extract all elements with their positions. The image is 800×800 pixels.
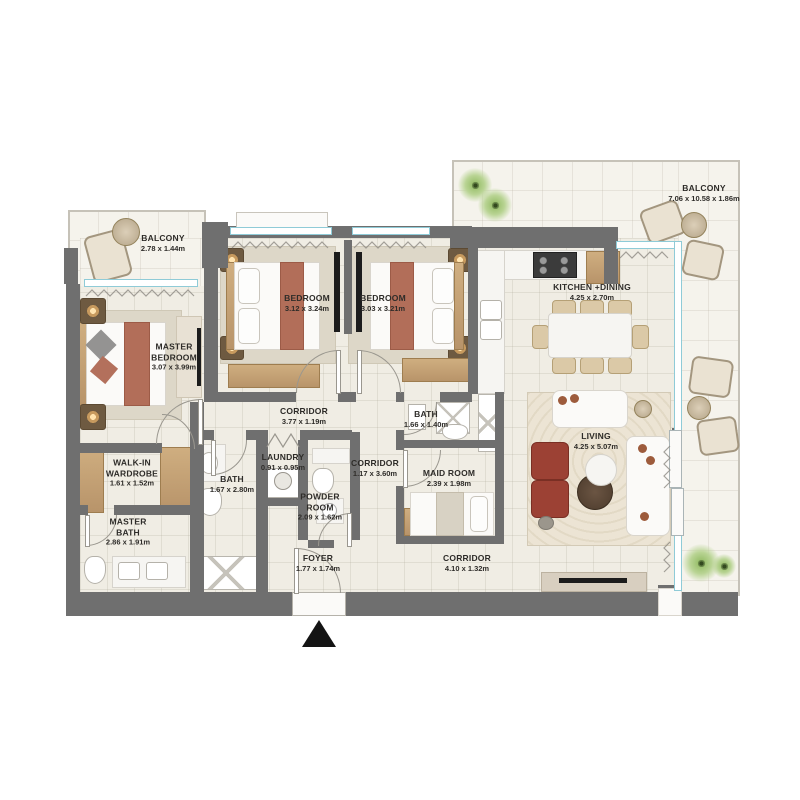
wall: [440, 392, 472, 402]
dining-chair: [552, 357, 576, 374]
sofa-cushion: [638, 444, 647, 453]
window: [230, 227, 332, 235]
wall: [604, 248, 618, 284]
wall: [468, 238, 478, 394]
coffee-table: [585, 454, 617, 486]
entrance-threshold: [292, 592, 346, 616]
entrance-door-leaf: [294, 548, 299, 594]
armchair: [531, 480, 569, 518]
door-leaf: [85, 515, 90, 547]
armchair: [531, 442, 569, 480]
bed-headboard: [454, 262, 464, 350]
toilet-icon: [312, 468, 334, 494]
door-leaf: [336, 350, 341, 394]
wall: [396, 440, 502, 448]
curtain-zigzag-icon: [352, 240, 430, 250]
sliding-door-panel: [671, 488, 684, 536]
balcony-table: [687, 396, 711, 420]
bed-runner: [390, 262, 414, 350]
door-leaf: [347, 513, 352, 547]
wall: [80, 443, 162, 453]
balcony-outline: [452, 160, 454, 227]
door-leaf: [211, 440, 216, 476]
sofa-cushion: [558, 396, 567, 405]
maid-bed-blanket: [436, 492, 464, 536]
tv: [559, 578, 627, 583]
bed-pillow: [238, 268, 260, 304]
bifold-door-icon: [266, 432, 302, 448]
wall: [114, 505, 190, 515]
window: [84, 279, 198, 287]
nightstand-lamp: [80, 404, 106, 430]
window: [616, 241, 680, 249]
master-bed-runner: [124, 322, 150, 406]
nightstand-lamp: [80, 298, 106, 324]
wall: [396, 392, 404, 402]
bedroom-2-wardrobe: [334, 252, 340, 332]
curtain-zigzag-icon: [618, 250, 676, 260]
balcony-outline: [738, 160, 740, 596]
dining-table: [548, 313, 632, 358]
stove-icon: [533, 252, 577, 278]
wall: [80, 505, 88, 515]
balcony-table: [112, 218, 140, 246]
sofa-cushion: [640, 512, 649, 521]
dining-chair: [608, 357, 632, 374]
washer-door-icon: [274, 472, 292, 490]
plant-icon: [478, 188, 512, 222]
door-leaf: [357, 350, 362, 394]
balcony-chair: [681, 238, 726, 281]
door-leaf: [198, 399, 203, 445]
bed-pillow: [470, 496, 488, 532]
dining-chair: [580, 357, 604, 374]
wall: [396, 486, 404, 540]
wall: [256, 438, 268, 592]
wall: [344, 240, 352, 334]
sofa-cushion: [570, 394, 579, 403]
wall: [204, 238, 218, 396]
entrance-arrow-icon: [302, 620, 336, 647]
bed-runner: [280, 262, 304, 350]
decor-stone: [538, 516, 554, 530]
balcony-outline: [452, 160, 740, 162]
window: [352, 227, 430, 235]
kitchen-sink-icon: [480, 300, 502, 320]
curtain-zigzag-icon: [230, 240, 332, 250]
kitchen-sink-icon: [480, 320, 502, 340]
wall: [495, 392, 504, 540]
sink-icon: [146, 562, 168, 580]
wall: [256, 498, 308, 506]
door-leaf: [403, 450, 408, 488]
bed-pillow: [432, 268, 454, 304]
master-tv: [197, 328, 201, 386]
plant-icon: [712, 554, 736, 578]
wall: [66, 284, 80, 616]
balcony-chair: [696, 415, 741, 456]
wall: [396, 536, 504, 544]
dining-chair: [532, 325, 549, 349]
sink-icon: [118, 562, 140, 580]
bed-pillow: [432, 308, 454, 344]
balcony-table: [681, 212, 707, 238]
bedroom-3-wardrobe: [356, 252, 362, 332]
wall: [64, 248, 78, 284]
balcony-outline: [68, 210, 206, 212]
wardrobe-unit: [160, 447, 192, 511]
toilet-icon: [84, 556, 106, 584]
wall: [300, 430, 352, 440]
balcony-chair: [688, 355, 735, 398]
bed-pillow: [238, 308, 260, 344]
sofa-cushion: [646, 456, 655, 465]
wall: [66, 592, 292, 616]
window-wall: [674, 241, 682, 591]
powder-counter: [312, 448, 350, 464]
side-table: [634, 400, 652, 418]
wall: [204, 392, 296, 402]
curtain-zigzag-icon: [662, 444, 672, 490]
curtain-zigzag-icon: [84, 288, 198, 298]
toilet-icon: [442, 424, 468, 440]
curtain-zigzag-icon: [662, 540, 672, 580]
wall: [298, 440, 308, 540]
wall: [204, 430, 214, 440]
dining-chair: [632, 325, 649, 349]
wall-step: [658, 588, 682, 616]
bedroom-3-dresser: [402, 358, 470, 382]
floor-plan: BALCONY 2.78 x 1.44m MASTER BEDROOM 3.07…: [0, 0, 800, 800]
